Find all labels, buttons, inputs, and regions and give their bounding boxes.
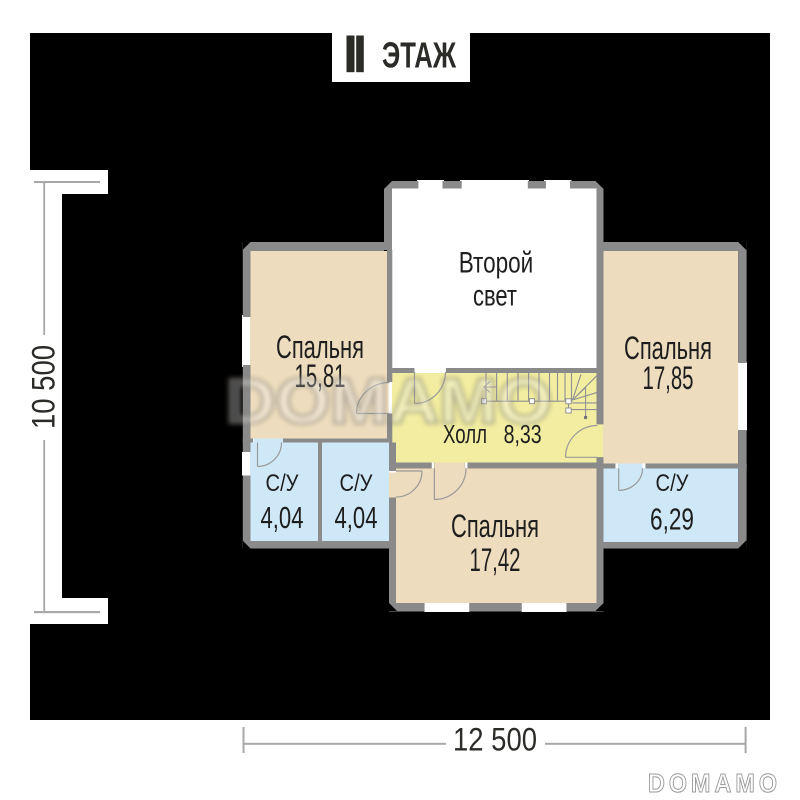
svg-text:4,04: 4,04: [335, 500, 378, 535]
svg-text:10 500: 10 500: [26, 345, 62, 429]
svg-text:DOMAMO: DOMAMO: [648, 768, 781, 798]
svg-text:С/У: С/У: [266, 470, 299, 497]
svg-text:Второй: Второй: [459, 247, 534, 280]
svg-text:17,42: 17,42: [470, 542, 521, 578]
svg-text:12 500: 12 500: [453, 722, 537, 758]
svg-text:DOMAMO: DOMAMO: [225, 365, 552, 437]
svg-text:6,29: 6,29: [650, 502, 694, 537]
svg-text:17,85: 17,85: [643, 360, 694, 396]
svg-text:С/У: С/У: [656, 470, 689, 497]
svg-text:4,04: 4,04: [261, 500, 304, 535]
svg-text:свет: свет: [473, 280, 517, 313]
svg-text:ЭТАЖ: ЭТАЖ: [382, 35, 456, 76]
svg-text:Спальня: Спальня: [451, 508, 539, 544]
svg-text:С/У: С/У: [340, 470, 373, 497]
